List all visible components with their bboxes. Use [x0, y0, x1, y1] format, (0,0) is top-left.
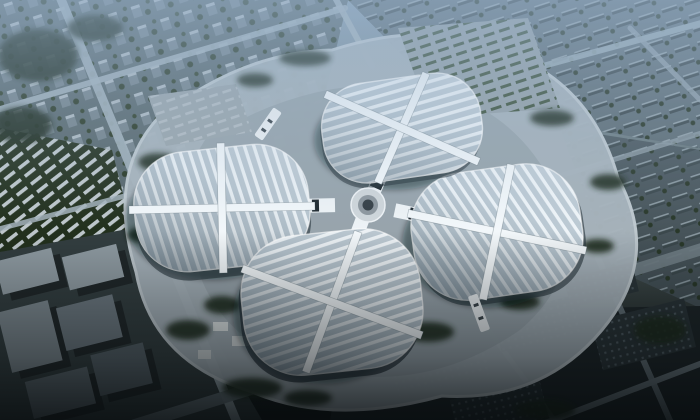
aerial-rendering — [0, 0, 700, 420]
bottom-shadow-overlay — [0, 0, 700, 420]
aerial-rendering-canvas — [0, 0, 700, 420]
